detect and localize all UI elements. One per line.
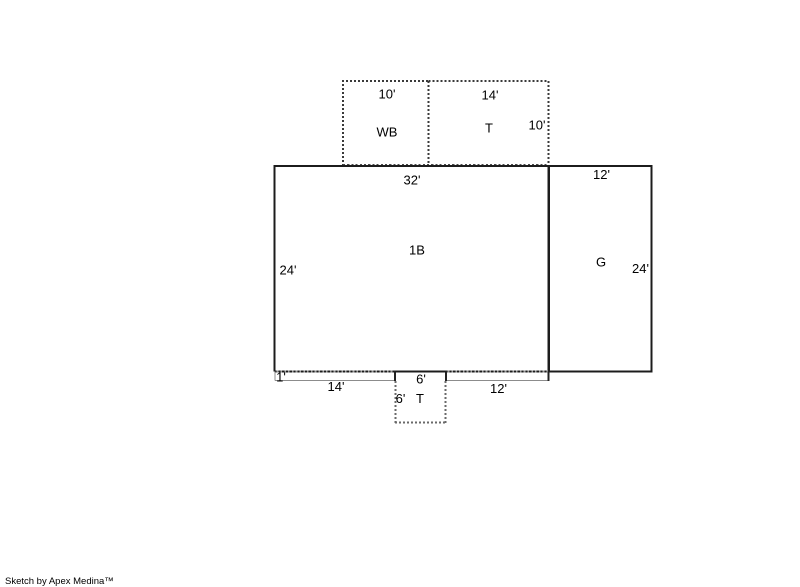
- svg-text:10': 10': [379, 87, 396, 102]
- svg-text:14': 14': [482, 88, 499, 103]
- svg-text:1B: 1B: [409, 243, 425, 258]
- svg-text:24': 24': [280, 263, 297, 278]
- svg-text:14': 14': [328, 379, 345, 394]
- svg-text:24': 24': [632, 261, 649, 276]
- svg-text:12': 12': [593, 167, 610, 182]
- svg-text:T: T: [485, 121, 493, 136]
- svg-text:T: T: [416, 391, 424, 406]
- svg-text:WB: WB: [377, 125, 398, 140]
- svg-text:10': 10': [529, 118, 546, 133]
- svg-text:12': 12': [490, 381, 507, 396]
- svg-text:6': 6': [396, 391, 406, 406]
- svg-text:6': 6': [416, 372, 426, 387]
- svg-text:1': 1': [276, 370, 286, 385]
- svg-text:32': 32': [404, 173, 421, 188]
- svg-text:G: G: [596, 255, 606, 270]
- svg-text:Sketch by Apex Medina™: Sketch by Apex Medina™: [5, 576, 114, 587]
